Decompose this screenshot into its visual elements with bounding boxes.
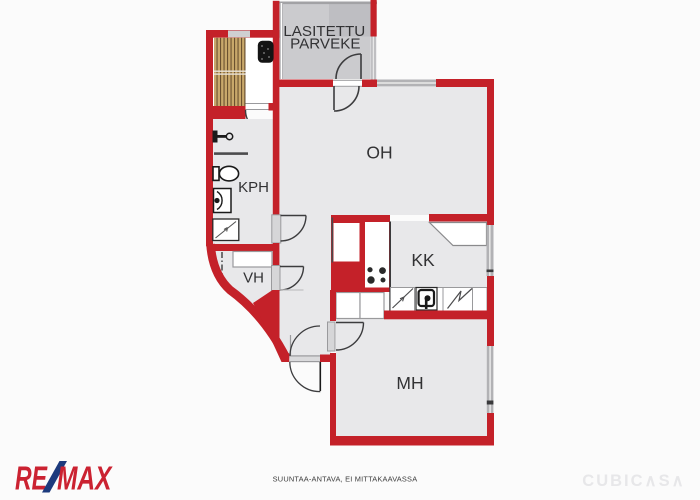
svg-text:MH: MH <box>396 373 423 393</box>
svg-text:KPH: KPH <box>238 179 269 196</box>
svg-text:OH: OH <box>366 142 392 162</box>
svg-text:PARVEKE: PARVEKE <box>290 36 360 53</box>
svg-text:RE: RE <box>15 460 48 497</box>
svg-text:VH: VH <box>243 269 264 286</box>
svg-text:SUUNTAA-ANTAVA, EI MITTAKAAVAS: SUUNTAA-ANTAVA, EI MITTAKAAVASSA <box>273 475 418 484</box>
svg-text:KK: KK <box>411 250 435 270</box>
svg-text:MAX: MAX <box>57 460 113 497</box>
svg-text:CUBIC∧S∧: CUBIC∧S∧ <box>582 472 685 490</box>
